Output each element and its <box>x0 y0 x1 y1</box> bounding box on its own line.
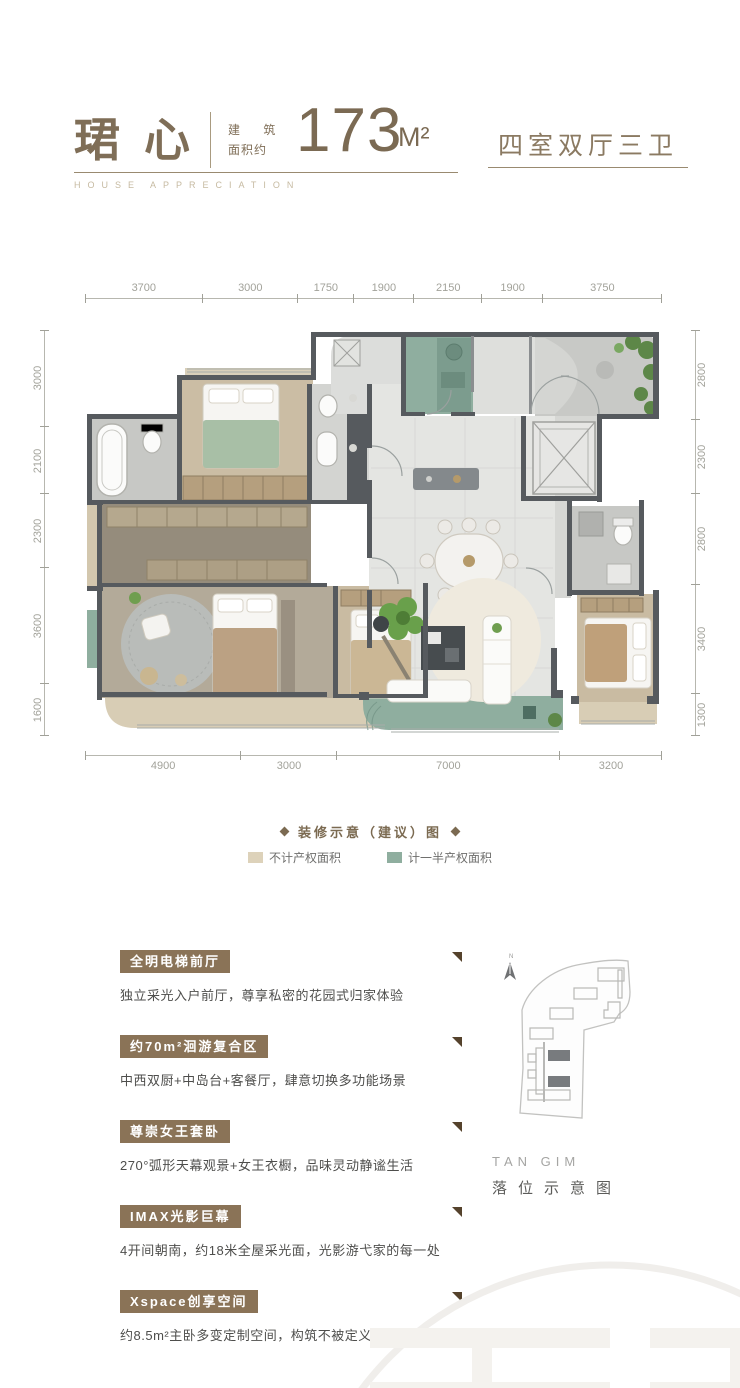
feature-label: 约70m²洄游复合区 <box>120 1035 268 1058</box>
dimension-label: 4900 <box>151 760 175 772</box>
page-title: 珺心 <box>74 104 214 170</box>
header-divider <box>210 112 211 168</box>
ruler-left: 30002100230036001600 <box>26 330 50 736</box>
balcony-tub <box>523 706 536 719</box>
feature-desc: 独立采光入户前厅，尊享私密的花园式归家体验 <box>120 985 450 1004</box>
dimension-label: 2300 <box>32 519 44 543</box>
feature-desc: 约8.5m²主卧多变定制空间，构筑不被定义的生活 <box>120 1325 450 1344</box>
sofa-bottom-icon <box>387 680 471 702</box>
corner-triangle-icon <box>452 1037 462 1047</box>
bed-topleft-icon <box>203 384 279 468</box>
layout-label: 四室双厅三卫 <box>488 126 688 162</box>
bathtub-icon <box>97 424 127 496</box>
ruler-top: 3700300017501900215019003750 <box>85 282 662 304</box>
dimension-label: 1300 <box>696 703 708 727</box>
legend-swatch-beige <box>248 852 263 863</box>
dimension-label: 3000 <box>238 282 262 294</box>
feature-label: IMAX光影巨幕 <box>120 1205 241 1228</box>
dimension-label: 3400 <box>696 627 708 651</box>
legend-label: 不计产权面积 <box>269 849 341 866</box>
feature-desc: 4开间朝南，约18米全屋采光面，光影游弋家的每一处 <box>120 1240 450 1259</box>
sofa-right-icon <box>483 616 511 704</box>
feature-item: IMAX光影巨幕 4开间朝南，约18米全屋采光面，光影游弋家的每一处 <box>120 1205 450 1259</box>
diamond-icon <box>280 827 290 837</box>
dimension-label: 3700 <box>132 282 156 294</box>
area-value: 173 <box>296 100 402 162</box>
toilet-topleft-icon <box>141 424 163 453</box>
feature-label: Xspace创享空间 <box>120 1290 258 1313</box>
dimension-label: 3000 <box>277 760 301 772</box>
master-bed-icon <box>213 594 295 696</box>
feature-item: Xspace创享空间 约8.5m²主卧多变定制空间，构筑不被定义的生活 <box>120 1290 450 1344</box>
corner-triangle-icon <box>452 1292 462 1302</box>
feature-item: 全明电梯前厅 独立采光入户前厅，尊享私密的花园式归家体验 <box>120 950 450 1004</box>
area-prefix: 建 筑 面积约 <box>228 120 285 160</box>
legend-label: 计一半产权面积 <box>408 849 492 866</box>
site-map-block: N <box>492 950 662 1198</box>
legend-item: 计一半产权面积 <box>387 849 492 866</box>
north-arrow-icon: N <box>504 954 516 980</box>
dimension-label: 2150 <box>436 282 460 294</box>
dimension-label: 7000 <box>436 760 460 772</box>
site-map-label: 落位示意图 <box>492 1177 662 1198</box>
site-map: N <box>492 950 652 1140</box>
hall-upper <box>369 384 405 418</box>
brand-name: TAN GIM <box>492 1154 662 1169</box>
feature-label: 尊崇女王套卧 <box>120 1120 230 1143</box>
plan-caption: 装修示意（建议）图 <box>298 822 442 841</box>
area-unit: M² <box>398 122 429 153</box>
wardrobe-topleft-icon <box>183 476 309 500</box>
dimension-label: 1750 <box>314 282 338 294</box>
feature-desc: 中西双厨+中岛台+客餐厅，肆意切换多功能场景 <box>120 1070 450 1089</box>
feature-label: 全明电梯前厅 <box>120 950 230 973</box>
dimension-label: 3200 <box>599 760 623 772</box>
poster-page: 珺心 建 筑 面积约 173 M² HOUSE APPRECIATION 四室双… <box>0 0 740 1388</box>
passage <box>473 336 535 414</box>
area-prefix-line2: 面积约 <box>228 140 285 160</box>
bed-right-icon <box>585 618 651 688</box>
floor-plan <box>85 328 662 736</box>
balcony-plant <box>548 713 562 727</box>
armchair-icon <box>373 616 389 632</box>
feature-item: 约70m²洄游复合区 中西双厨+中岛台+客餐厅，肆意切换多功能场景 <box>120 1035 450 1089</box>
dimension-label: 1600 <box>32 698 44 722</box>
dimension-label: 1900 <box>372 282 396 294</box>
area-prefix-line1: 建 筑 <box>228 120 285 140</box>
legend-item: 不计产权面积 <box>248 849 341 866</box>
wardrobe-right-icon <box>581 598 643 612</box>
corner-triangle-icon <box>452 952 462 962</box>
corner-triangle-icon <box>452 1207 462 1217</box>
corner-triangle-icon <box>452 1122 462 1132</box>
dimension-label: 2100 <box>32 448 44 472</box>
ruler-right: 28002300280034001300 <box>690 330 714 736</box>
header-underline-right <box>488 167 688 168</box>
island-icon <box>413 468 479 490</box>
dimension-label: 2300 <box>696 445 708 469</box>
ruler-bottom: 4900300070003200 <box>85 750 662 772</box>
dimension-label: 2800 <box>696 527 708 551</box>
dimension-label: 2800 <box>696 363 708 387</box>
legend-swatch-teal <box>387 852 402 863</box>
plan-legend: 不计产权面积 计一半产权面积 <box>0 849 740 866</box>
dimension-label: 3600 <box>32 614 44 638</box>
plan-caption-row: 装修示意（建议）图 <box>0 822 740 841</box>
garden-rock <box>596 361 614 379</box>
diamond-icon <box>451 827 461 837</box>
feature-item: 尊崇女王套卧 270°弧形天幕观景+女王衣橱，品味灵动静谧生活 <box>120 1120 450 1174</box>
feature-list: 全明电梯前厅 独立采光入户前厅，尊享私密的花园式归家体验 约70m²洄游复合区 … <box>120 950 450 1375</box>
header-english-subtitle: HOUSE APPRECIATION <box>74 180 300 190</box>
dimension-label: 3750 <box>590 282 614 294</box>
feature-desc: 270°弧形天幕观景+女王衣橱，品味灵动静谧生活 <box>120 1155 450 1174</box>
elevator-icon <box>533 422 595 494</box>
dimension-label: 1900 <box>500 282 524 294</box>
svg-text:N: N <box>509 954 513 960</box>
dimension-label: 3000 <box>32 366 44 390</box>
header-underline-left <box>74 172 458 173</box>
